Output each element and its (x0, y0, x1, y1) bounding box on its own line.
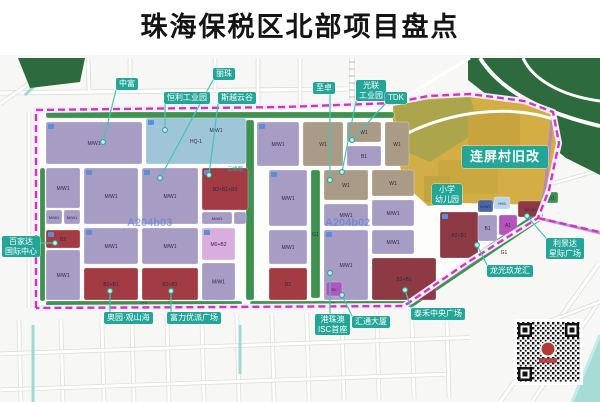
area-code: A204b03 (127, 217, 172, 229)
parcel-code: M/W1 (163, 194, 176, 200)
parcel-tag-icon (86, 230, 92, 235)
parcel-tag-icon (326, 232, 332, 237)
parcel-code: M/W1 (271, 142, 284, 148)
parcel-code: M/W1 (386, 211, 399, 217)
area-code: A204b02 (325, 217, 370, 229)
parcel-code: M/W1 (104, 194, 117, 200)
parcel-code: W1 (389, 181, 397, 187)
pointer-dot (340, 293, 345, 298)
parcel-code: H93 (498, 201, 506, 206)
parcel-code: B2+B1 (451, 233, 466, 239)
pointer-dot (403, 288, 408, 293)
parcel-tag-icon (442, 214, 448, 219)
pointer-dot (328, 178, 333, 183)
parcel-code: B2+B1 (103, 282, 118, 288)
pointer-dot (101, 140, 106, 145)
parcel-code: B1 (484, 226, 490, 232)
parcel-code: W1 (319, 142, 327, 148)
parcel-code: B2 (332, 287, 338, 292)
page-title: 珠海保税区北部项目盘点 (0, 5, 600, 44)
parcel-code: M/W1 (56, 186, 69, 192)
parcel-code: B2 (60, 237, 66, 243)
parcel-tag-icon (86, 170, 92, 175)
pointer-dot (163, 128, 168, 133)
parcel (46, 112, 394, 118)
pointer-dot (340, 170, 345, 175)
parcel-code: M/W1 (56, 273, 69, 279)
parcel-code: M/W1 (212, 280, 225, 286)
road-name: 云峰路 (227, 165, 244, 173)
parcel-code: M/W1 (339, 263, 352, 269)
pointer-dot (328, 271, 333, 276)
pointer-dot (158, 176, 163, 181)
village-redevelopment-area (393, 94, 559, 206)
parcel-code: M/W1 (67, 215, 78, 220)
parcel-code: W1 (393, 142, 401, 148)
parcel-code: G1 (501, 250, 508, 256)
parcel-code: M/W1 (104, 244, 117, 250)
qr-center-logo-icon (542, 343, 555, 356)
parcel-tag-icon (271, 172, 277, 177)
pointer-dot (169, 289, 174, 294)
qr-code (514, 319, 583, 385)
infographic-page: G1G1G1G1G1M/W1HQ-1M/W1M/W1M/W1M/W1M/W1M/… (0, 0, 600, 402)
parcel-tag-icon (148, 120, 154, 125)
parcel-code: M/W1 (49, 215, 60, 220)
parcel (40, 168, 45, 301)
parcel-code: M0+B2 (211, 242, 227, 248)
parcel-code: B2 (285, 282, 291, 288)
parcel-code: W1 (360, 130, 368, 136)
pointer-dot (108, 289, 113, 294)
parcel-code: B2+B1 (396, 277, 411, 283)
parcel-code: M/W1 (87, 141, 100, 147)
parcel-tag-icon (204, 230, 210, 235)
pointer-dot (475, 243, 480, 248)
parcel-code: M/W1 (386, 240, 399, 246)
pointer-dot (350, 138, 355, 143)
parcel-code: M/W1 (209, 128, 222, 134)
parcel-code: M/W1 (281, 196, 294, 202)
parcel-code: M/W1 (480, 204, 491, 209)
parcel-code: HQ-1 (190, 139, 202, 145)
pointer-dot (53, 241, 58, 246)
pointer-dot (525, 214, 530, 219)
parcel (234, 212, 246, 224)
parcel-tag-icon (48, 124, 54, 129)
map-canvas: G1G1G1G1G1M/W1HQ-1M/W1M/W1M/W1M/W1M/W1M/… (0, 0, 600, 402)
parcel-tag-icon (144, 170, 150, 175)
parcel-code: G1 (312, 232, 319, 238)
parcel-code: W1 (342, 183, 350, 189)
parcel-code: M/W1 (163, 244, 176, 250)
parcel-tag-icon (259, 124, 265, 129)
parcel-code: M/W1 (212, 216, 223, 221)
parcel-tag-icon (48, 232, 54, 237)
parcel-code: B2+B3 (524, 207, 537, 212)
parcel-code: B2+B1 (162, 282, 177, 288)
parcel-code: M/W1 (281, 245, 294, 251)
parcel-code: A1 (505, 223, 511, 229)
parcel-code: B1 (361, 154, 367, 160)
parcel-code: B2+B1+B3 (213, 187, 237, 193)
pointer-dot (207, 173, 212, 178)
